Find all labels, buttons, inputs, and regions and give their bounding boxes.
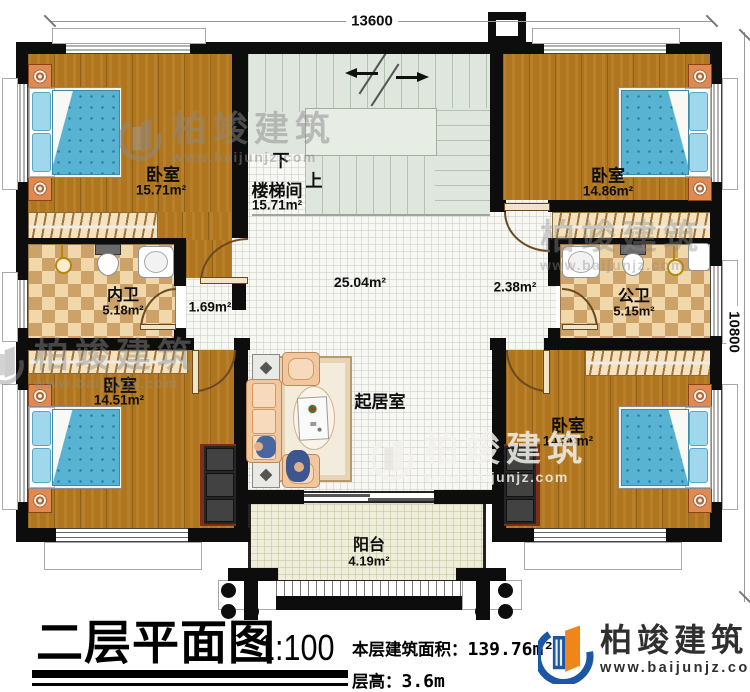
wall-living-south — [438, 490, 492, 504]
nightstand — [688, 176, 712, 201]
tv-cabinet — [200, 444, 236, 526]
room-label: 卧室 — [591, 168, 625, 185]
stair-landing — [305, 108, 437, 156]
page-title: 二层平面图 — [36, 619, 276, 666]
wall-interior — [232, 284, 246, 310]
wall-interior — [544, 338, 722, 350]
stair-up-label: 上 — [306, 173, 323, 190]
coffee-table — [297, 396, 329, 441]
brand-name: 柏竣建筑 — [600, 624, 748, 656]
window-sill — [2, 78, 18, 190]
nightstand — [28, 384, 52, 408]
wardrobe — [28, 350, 188, 374]
window-sill — [532, 28, 680, 44]
column-base — [475, 604, 490, 619]
bed — [28, 87, 122, 178]
window — [534, 528, 666, 542]
door-leaf — [140, 324, 176, 330]
door-leaf — [200, 277, 248, 284]
title-underline-thin — [32, 683, 348, 686]
room-label: 卧室 — [146, 167, 180, 184]
side-table — [252, 354, 280, 381]
shower-hose — [61, 244, 63, 258]
stair-arrow-right-icon — [417, 72, 429, 82]
wall-living-south — [234, 490, 300, 504]
room-area: 15.71m² — [252, 198, 302, 212]
column-base — [498, 583, 513, 598]
room-label: 起居室 — [355, 394, 406, 411]
window-sill — [722, 384, 738, 510]
chimney — [488, 12, 526, 44]
nightstand — [688, 488, 712, 513]
dimension-label-top: 13600 — [346, 14, 398, 29]
room-bedroom-top-left-alcove — [156, 212, 232, 240]
title-underline-thick — [32, 670, 348, 678]
room-area: 25.04m² — [334, 275, 386, 289]
room-area: 15.71m² — [136, 183, 186, 197]
dimension-line-right — [744, 32, 745, 602]
sliding-door — [300, 491, 438, 503]
wall-interior — [234, 338, 250, 350]
balcony-base — [276, 596, 462, 610]
stair-right-flight — [434, 108, 490, 216]
bed — [618, 406, 712, 489]
stair-lower-flight — [305, 154, 435, 216]
person — [286, 450, 310, 482]
door-leaf — [504, 203, 550, 211]
stair-arrow-tail — [356, 72, 378, 75]
floor-plan-page: 卧室 15.71m² 下 上 楼梯间 15.71m² 卧室 14.86m² 内卫… — [0, 0, 750, 692]
bed — [618, 87, 712, 178]
balcony-sill-right — [462, 580, 522, 610]
door-leaf — [562, 324, 598, 330]
nightstand — [688, 384, 712, 408]
room-area: 14.51m² — [94, 393, 144, 407]
window — [710, 266, 722, 336]
room-label: 卧室 — [551, 418, 585, 435]
sink-basin — [568, 251, 594, 273]
door-leaf — [192, 350, 199, 394]
stair-arrow-tail — [396, 76, 418, 79]
window-sill — [722, 78, 738, 190]
column-base — [221, 583, 236, 598]
shower-hose — [673, 246, 675, 260]
drawing-scale: 1:100 — [258, 630, 335, 666]
window — [56, 528, 188, 542]
dimension-label-right: 10800 — [727, 306, 742, 358]
nightstand — [688, 64, 712, 89]
door-leaf — [543, 350, 550, 394]
floor-height-value: 3.6m — [402, 671, 445, 692]
tv-cabinet — [504, 444, 540, 526]
window-sill — [44, 542, 202, 570]
window-sill — [524, 542, 682, 570]
window-sill — [2, 272, 18, 342]
room-area: 5.15m² — [613, 305, 654, 318]
wall-interior — [548, 200, 722, 212]
room-area: 14.86m² — [543, 434, 593, 448]
window-sill — [2, 384, 18, 510]
wardrobe — [585, 350, 712, 376]
stair-edge — [252, 214, 490, 216]
floor-height-line: 层高：3.6m — [352, 668, 445, 692]
floor-area-line: 本层建筑面积：139.76m² — [352, 636, 554, 660]
room-area: 14.86m² — [583, 184, 633, 198]
person — [256, 436, 276, 458]
side-table — [252, 461, 280, 488]
shower-head-icon — [55, 257, 72, 274]
nightstand — [28, 488, 52, 513]
shower-head-icon — [667, 259, 684, 276]
room-area: 5.18m² — [102, 304, 143, 317]
stair-upper-flight — [248, 54, 490, 112]
wall-interior — [16, 338, 194, 350]
room-area: 2.38m² — [494, 280, 537, 294]
door-post — [296, 490, 304, 504]
stair-down-label: 下 — [273, 153, 290, 170]
nightstand — [28, 176, 52, 201]
wall-interior — [490, 338, 506, 350]
room-area: 1.69m² — [189, 300, 232, 314]
brand-logo-icon — [538, 616, 594, 684]
bed — [28, 406, 122, 489]
nightstand — [28, 64, 52, 89]
column-base — [498, 604, 513, 619]
sliding-door-panel — [302, 494, 370, 497]
door-post — [434, 490, 442, 504]
window-sill — [52, 28, 206, 44]
wall-interior — [174, 244, 186, 286]
brand-url: www.baijunjz.com — [600, 660, 750, 676]
armchair — [282, 352, 320, 386]
wall-interior — [490, 42, 503, 212]
sliding-door-panel — [368, 498, 436, 501]
room-label: 阳台 — [353, 538, 385, 554]
bath-shelf — [688, 243, 710, 271]
wall-interior — [232, 42, 248, 238]
room-area: 4.19m² — [348, 555, 389, 568]
stair-floor — [248, 112, 305, 154]
sink-basin — [144, 251, 168, 273]
